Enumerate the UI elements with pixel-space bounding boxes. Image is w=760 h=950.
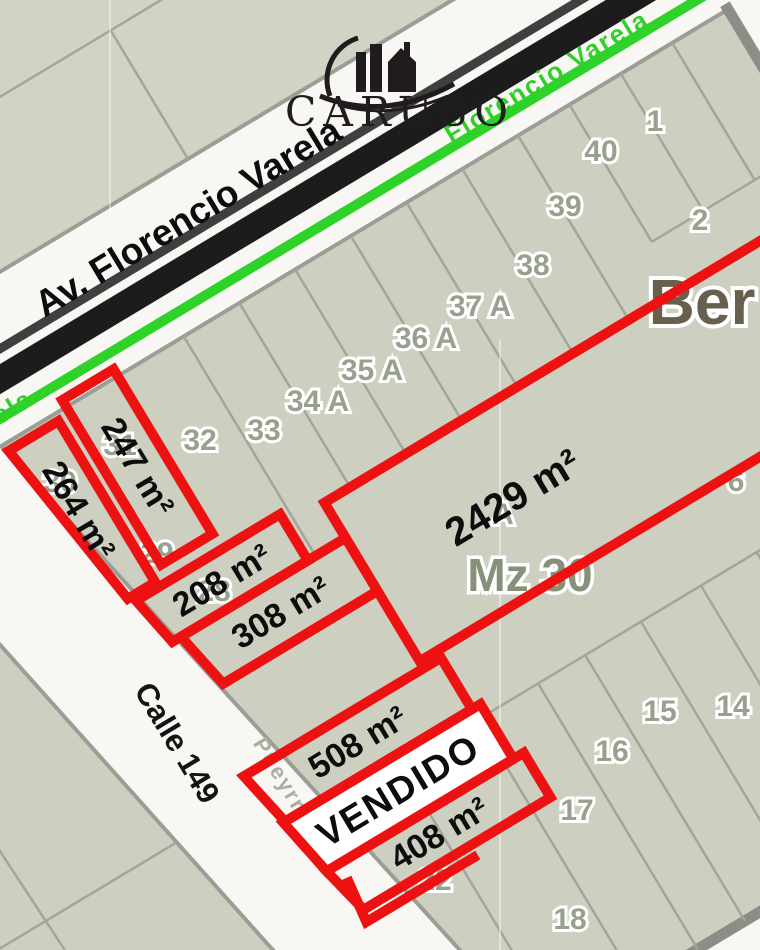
lot-number: 33 <box>247 414 280 447</box>
lot-number: 17 <box>560 794 593 827</box>
lot-number: 36 A <box>395 322 457 355</box>
lot-number: 40 <box>584 135 617 168</box>
logo-building-2 <box>370 44 382 92</box>
lot-number: 2 <box>692 204 709 237</box>
lot-number: 38 <box>516 249 549 282</box>
lot-number: 15 <box>643 695 676 728</box>
logo-house <box>388 48 416 92</box>
logo-building-1 <box>356 52 366 92</box>
real-estate-map: Pueyrre 30 31 32 33 34 A 35 A 36 A 37 A … <box>0 0 760 950</box>
lot-number: 1 <box>647 105 664 138</box>
map-canvas: Pueyrre 30 31 32 33 34 A 35 A 36 A 37 A … <box>0 0 760 950</box>
cross-street-label: Calle 149 <box>127 676 226 809</box>
lot-number: 16 <box>595 735 628 768</box>
lot-number: 32 <box>183 424 216 457</box>
lot-number: 18 <box>553 903 586 936</box>
lot-number: 34 A <box>287 385 349 418</box>
lot-number: 35 A <box>341 354 403 387</box>
lot-number: 14 <box>716 690 750 723</box>
lot-number: 39 <box>548 190 581 223</box>
brand-name: CARUSO <box>285 88 515 136</box>
lot-number: 37 A <box>449 290 511 323</box>
